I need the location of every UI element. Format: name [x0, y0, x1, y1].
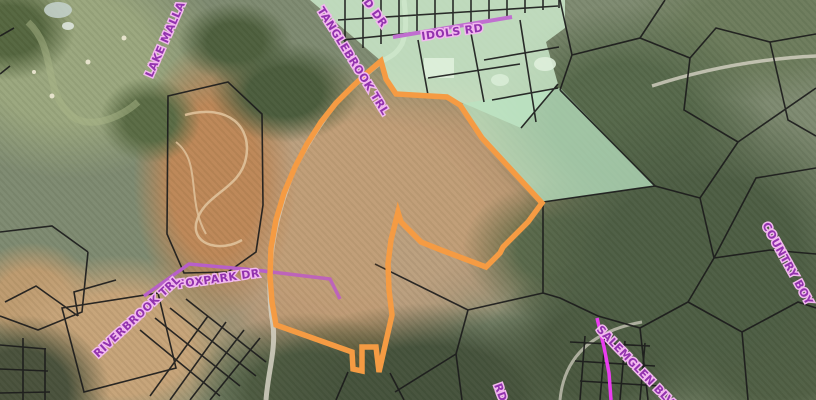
- map-feature-layer: LAKE MALLA D DR TANGLEBROOK TRL IDOLS RD…: [0, 0, 816, 400]
- dirt-road-foxpark-2: [176, 142, 206, 234]
- road-label-lake-malla: LAKE MALLA: [143, 0, 188, 79]
- road-label-foxpark-dr: FOXPARK DR: [177, 267, 261, 291]
- pond-small: [62, 22, 74, 30]
- parcel-lines-left: [0, 28, 263, 392]
- road-label-riverbrook-trl: RIVERBROOK TRL: [91, 273, 183, 360]
- sand-bunker: [32, 70, 36, 74]
- sand-bunker: [86, 60, 91, 65]
- paved-road-top-right: [652, 56, 816, 86]
- sand-bunker: [50, 94, 55, 99]
- golf-fairway: [28, 22, 138, 122]
- ballfield: [534, 57, 556, 71]
- map-viewport[interactable]: LAKE MALLA D DR TANGLEBROOK TRL IDOLS RD…: [0, 0, 816, 400]
- road-label-country-boy: COUNTRY BOY: [759, 220, 815, 308]
- dirt-road-foxpark-1: [185, 112, 247, 246]
- pond: [44, 2, 72, 18]
- ballfield: [491, 74, 509, 86]
- road-label-rd-partial: RD: [491, 382, 510, 400]
- sand-bunker: [122, 36, 127, 41]
